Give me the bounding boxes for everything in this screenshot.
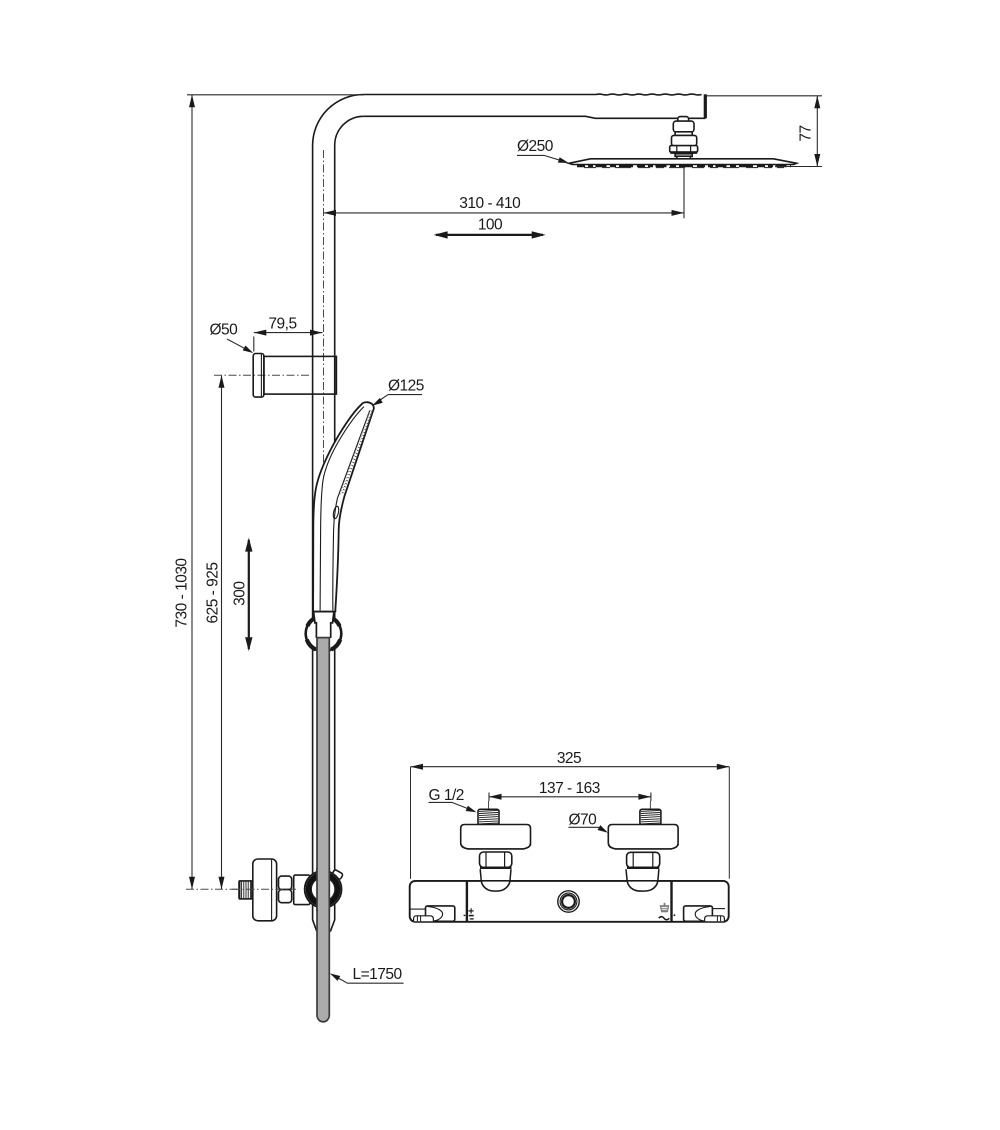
svg-text:Ø70: Ø70 <box>569 812 598 829</box>
svg-text:137 - 163: 137 - 163 <box>539 780 600 797</box>
svg-text:77: 77 <box>798 125 815 141</box>
svg-text:L=1750: L=1750 <box>353 966 403 983</box>
svg-text:G 1/2: G 1/2 <box>429 787 464 804</box>
svg-text:100: 100 <box>478 217 503 234</box>
svg-text:Ø50: Ø50 <box>210 321 239 338</box>
svg-text:300: 300 <box>232 581 249 606</box>
svg-text:Ø125: Ø125 <box>388 377 424 394</box>
svg-text:310 - 410: 310 - 410 <box>459 195 521 212</box>
svg-text:79,5: 79,5 <box>268 315 296 332</box>
svg-text:730 - 1030: 730 - 1030 <box>174 558 191 628</box>
svg-text:325: 325 <box>557 750 581 767</box>
svg-text:625 - 925: 625 - 925 <box>205 563 222 624</box>
svg-text:Ø250: Ø250 <box>517 138 554 155</box>
